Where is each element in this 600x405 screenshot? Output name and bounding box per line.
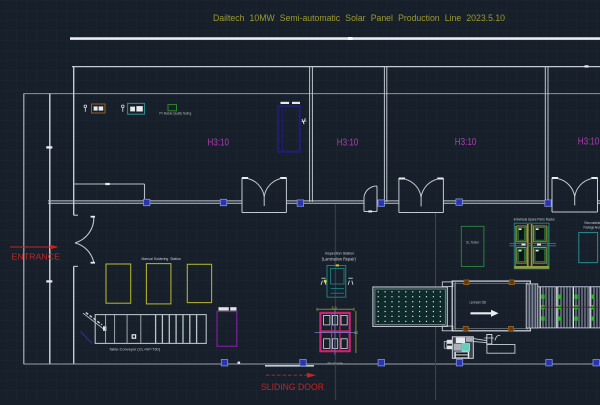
svg-text:Laminator 23B: Laminator 23B — [470, 300, 487, 304]
svg-text:Raw material: Raw material — [585, 221, 600, 225]
svg-text:EL Tester: EL Tester — [466, 241, 479, 245]
svg-text:Individual Spare Parts Racks: Individual Spare Parts Racks — [514, 217, 555, 221]
svg-text:H3:10: H3:10 — [208, 136, 230, 148]
svg-text:Dailtech 10MW Semi-automatic S: Dailtech 10MW Semi-automatic Solar Panel… — [213, 13, 505, 24]
svg-text:Inspection Station: Inspection Station — [325, 250, 355, 255]
svg-text:H3:10: H3:10 — [578, 136, 600, 148]
svg-text:40 Grade: 40 Grade — [327, 362, 343, 366]
svg-text:H3:10: H3:10 — [455, 136, 477, 148]
svg-text:3.0: 3.0 — [332, 306, 337, 310]
svg-text:2.2: 2.2 — [354, 331, 358, 335]
svg-text:SLIDING DOOR: SLIDING DOOR — [261, 382, 324, 392]
svg-text:PV Module Quality Testing: PV Module Quality Testing — [159, 111, 191, 115]
svg-text:(Lamination Repair): (Lamination Repair) — [322, 256, 357, 261]
svg-text:H3:10: H3:10 — [337, 136, 359, 148]
svg-text:Manual Soldering Station: Manual Soldering Station — [142, 257, 182, 261]
svg-text:ENTRANCE: ENTRANCE — [12, 251, 61, 261]
svg-text:Package Area: Package Area — [584, 226, 600, 230]
svg-text:Table-Conveyor (CL×W=T30): Table-Conveyor (CL×W=T30) — [109, 347, 161, 351]
